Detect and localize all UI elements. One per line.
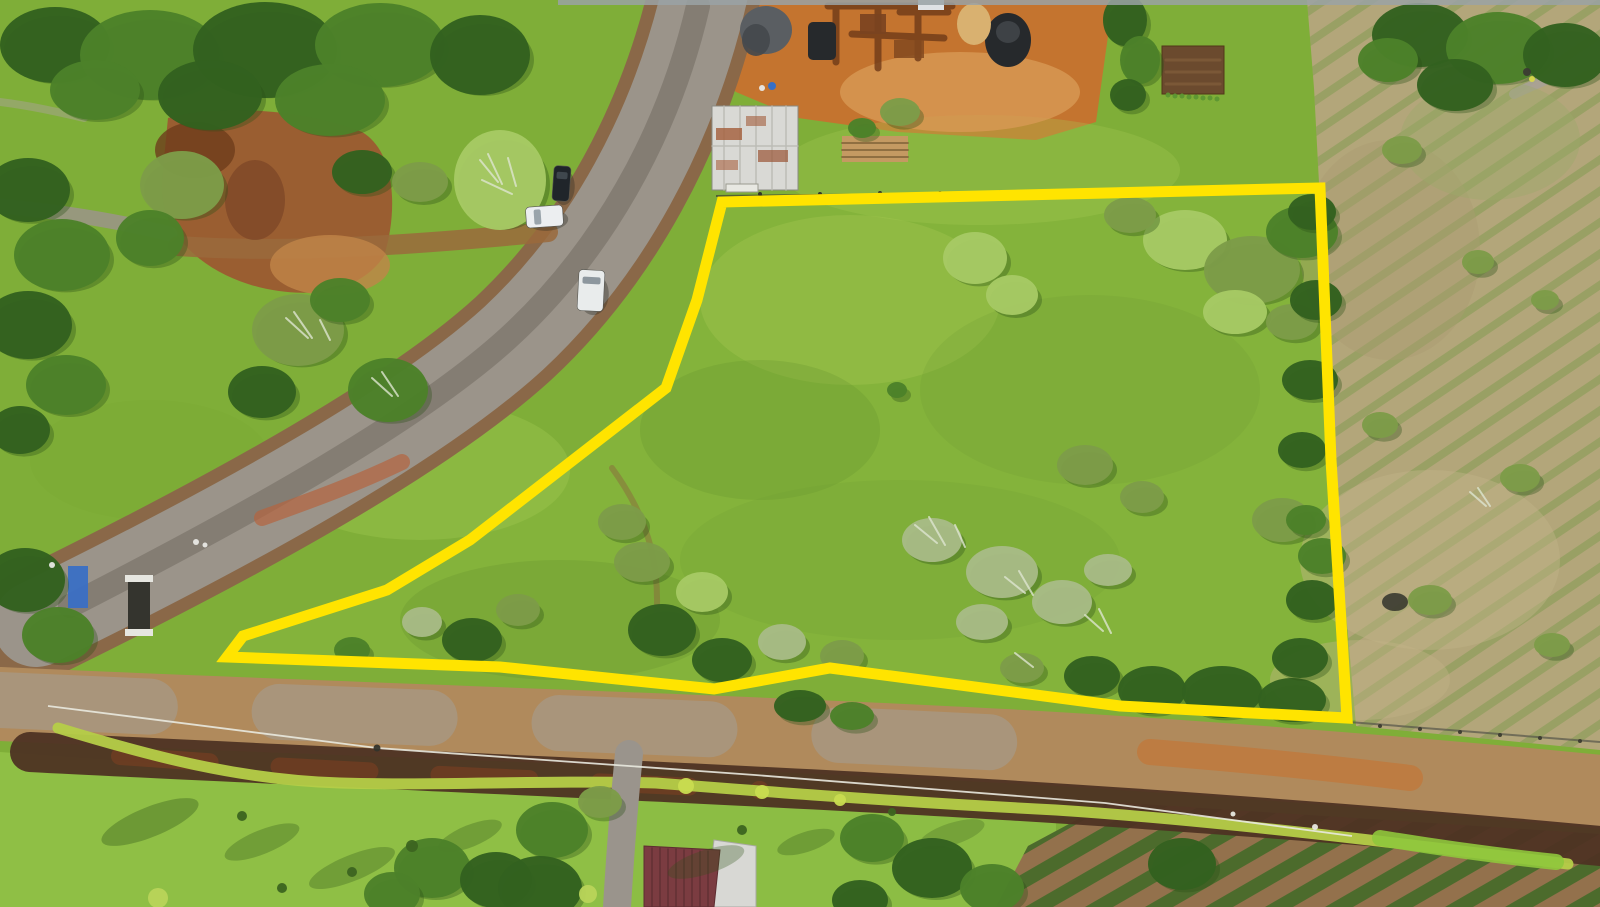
tree-46	[1104, 197, 1156, 233]
tree-17	[392, 162, 448, 202]
tree-87	[516, 802, 588, 858]
tree-37	[1500, 464, 1540, 492]
dot-42	[678, 778, 694, 794]
tree-47	[943, 232, 1007, 284]
aerial-photo	[0, 0, 1600, 907]
black-tarp-small	[808, 22, 836, 60]
tree-78	[1278, 432, 1326, 468]
dot-30	[1194, 95, 1199, 100]
dot-21	[49, 562, 55, 568]
tree-4	[430, 15, 530, 95]
dot-0	[758, 192, 762, 196]
tree-32	[1417, 59, 1493, 111]
tree-48	[986, 275, 1038, 315]
excavation-dark-2	[894, 40, 924, 58]
tree-89	[578, 786, 622, 818]
cattle-gate-cap-bottom	[125, 629, 153, 636]
cattle-gate	[128, 578, 150, 636]
dot-33	[1215, 97, 1220, 102]
dirt-erosion	[225, 160, 285, 240]
dot-25	[759, 85, 765, 91]
tree-60	[676, 572, 728, 612]
tree-61	[692, 638, 752, 682]
tree-15	[116, 210, 184, 266]
tree-23	[22, 607, 94, 663]
tree-65	[1064, 656, 1120, 696]
aerial-scene-canvas	[0, 0, 1600, 907]
dot-23	[203, 543, 208, 548]
dot-15	[1578, 739, 1582, 743]
dot-39	[888, 808, 896, 816]
tree-6	[275, 64, 385, 136]
tree-39	[1408, 585, 1452, 615]
dot-14	[1538, 736, 1542, 740]
tree-28	[1110, 79, 1146, 111]
dot-31	[1201, 96, 1206, 101]
dot-22	[193, 539, 199, 545]
tree-55	[966, 546, 1038, 598]
tree-62	[758, 624, 806, 660]
dot-28	[1180, 94, 1185, 99]
tree-38	[1531, 290, 1559, 310]
tree-44	[1203, 290, 1267, 334]
tree-35	[1462, 250, 1494, 274]
white-van-windshield	[582, 277, 600, 285]
tree-24	[880, 98, 920, 126]
roof-rust-3	[758, 150, 788, 162]
tree-5	[158, 60, 262, 130]
tree-56	[1032, 580, 1092, 624]
dot-20	[1529, 76, 1535, 82]
tree-33	[1358, 38, 1418, 82]
black-suv-windshield	[556, 172, 567, 180]
white-car-windshield	[534, 209, 542, 224]
dot-12	[1458, 730, 1462, 734]
roof-rust-1	[716, 128, 742, 140]
tree-19	[348, 358, 428, 422]
tree-75	[1288, 194, 1336, 230]
tree-76	[1290, 280, 1342, 320]
dot-27	[1173, 94, 1178, 99]
tree-72	[598, 504, 646, 540]
cattle-gate-cap-top	[125, 575, 153, 582]
tarp-mound-sheen	[996, 21, 1020, 43]
white-car-body	[525, 205, 563, 229]
dot-17	[1312, 824, 1318, 830]
tree-57	[956, 604, 1008, 640]
roof-rust-4	[716, 160, 738, 170]
tree-34	[1382, 136, 1422, 164]
tree-58	[1084, 554, 1132, 586]
black-suv-body	[552, 165, 571, 201]
tree-36	[1362, 412, 1398, 438]
dot-36	[347, 867, 357, 877]
tree-11	[26, 355, 106, 415]
tree-59	[628, 604, 696, 656]
dot-13	[1498, 733, 1502, 737]
tree-25	[848, 118, 876, 138]
house-driveway	[617, 754, 629, 907]
tree-79	[1286, 505, 1326, 535]
tree-91	[892, 838, 972, 898]
tree-51	[1120, 481, 1164, 513]
dot-26	[1166, 93, 1171, 98]
tree-27	[1120, 36, 1160, 84]
tree-73	[614, 542, 670, 582]
dot-35	[406, 840, 418, 852]
dot-16	[374, 745, 381, 752]
tree-14	[140, 151, 224, 219]
tree-20	[228, 366, 296, 418]
white-van-body	[577, 269, 605, 311]
tree-81	[1272, 638, 1328, 678]
tree-90	[840, 814, 904, 862]
dot-43	[755, 785, 769, 799]
dot-24	[768, 82, 776, 90]
dot-10	[1378, 724, 1382, 728]
tree-16	[332, 150, 392, 194]
tree-21	[310, 278, 370, 322]
garden-bed	[1162, 46, 1224, 94]
sand-pile	[957, 3, 991, 45]
dot-19	[1523, 68, 1531, 76]
tree-7	[50, 60, 140, 120]
dot-11	[1418, 727, 1422, 731]
tree-83	[830, 702, 874, 730]
dot-44	[834, 794, 846, 806]
dot-37	[277, 883, 287, 893]
orthomosaic-edge	[558, 0, 1600, 5]
tree-40	[1534, 633, 1570, 657]
dot-29	[1187, 95, 1192, 100]
tree-94	[1148, 838, 1216, 890]
tree-80	[1286, 580, 1338, 620]
tree-82	[774, 690, 826, 722]
warehouse-sign	[726, 184, 758, 192]
dot-34	[237, 811, 247, 821]
tree-9	[14, 219, 110, 291]
dot-18	[1231, 812, 1236, 817]
grass-mottle-4	[640, 360, 880, 500]
excavation-dark-1	[860, 14, 886, 34]
dark-animal-or-stump	[1382, 593, 1408, 611]
work-tent-shade	[742, 24, 770, 56]
tree-49	[887, 382, 907, 398]
tree-50	[1057, 445, 1113, 485]
dot-38	[737, 825, 747, 835]
dot-41	[579, 885, 597, 903]
roof-rust-2	[746, 116, 766, 126]
dot-32	[1208, 96, 1213, 101]
blue-tarp	[68, 566, 88, 608]
tree-69	[442, 618, 502, 662]
tree-70	[402, 607, 442, 637]
tree-74	[496, 594, 540, 626]
